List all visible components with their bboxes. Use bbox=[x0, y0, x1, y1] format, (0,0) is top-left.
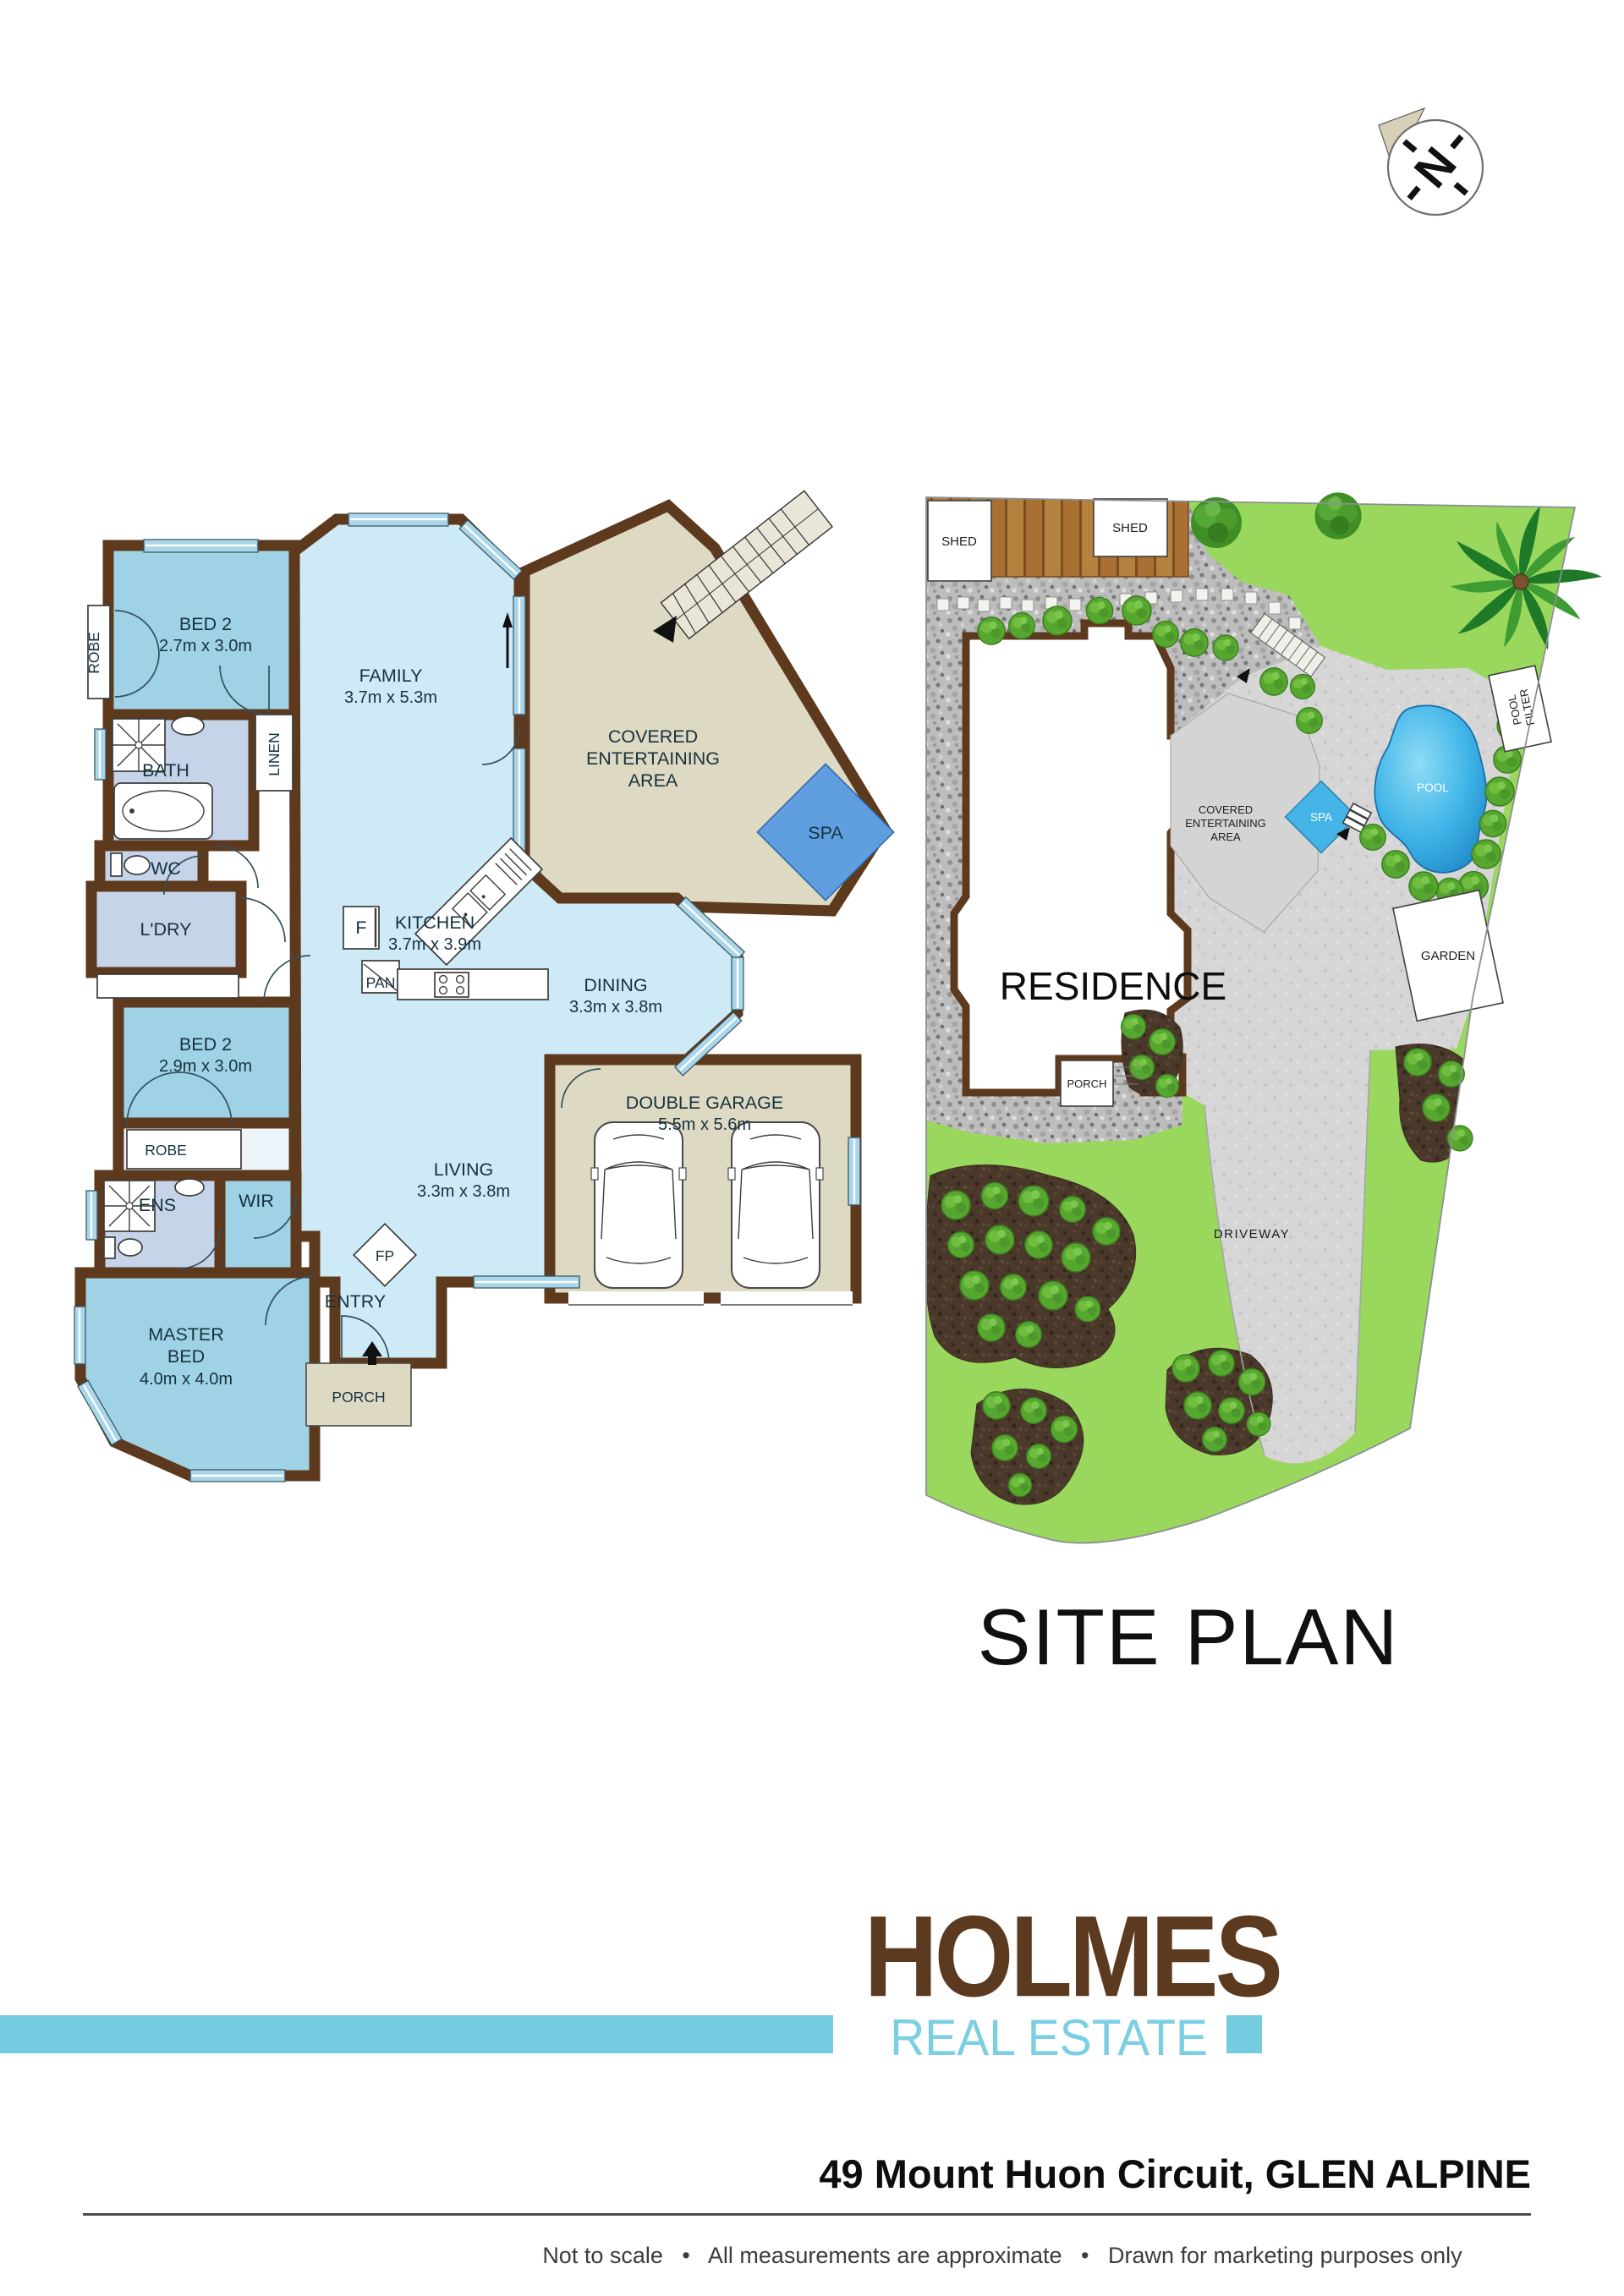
sp-label-shed-2: SHED bbox=[1112, 521, 1148, 535]
sp-label-residence: RESIDENCE bbox=[1000, 964, 1226, 1008]
compass: N bbox=[1378, 108, 1492, 225]
fp-label-covered-3: AREA bbox=[628, 770, 678, 791]
brand-logo-subtitle: REAL ESTATE bbox=[868, 2013, 1230, 2063]
fp-label-master-dims: 4.0m x 4.0m bbox=[140, 1370, 233, 1389]
fp-car-left bbox=[591, 1122, 686, 1288]
fp-label-dining: DINING bbox=[584, 975, 647, 995]
fp-label-robe-mid: ROBE bbox=[145, 1142, 187, 1159]
brand-logo-name: HOLMES bbox=[864, 1899, 1234, 2014]
fp-label-pantry: PAN bbox=[366, 974, 396, 991]
divider-line bbox=[83, 2213, 1531, 2216]
sp-tree-2 bbox=[1314, 492, 1361, 539]
fp-label-fp: FP bbox=[376, 1247, 394, 1264]
fp-label-linen: LINEN bbox=[266, 732, 283, 776]
sp-label-covered-1: COVERED bbox=[1199, 803, 1253, 816]
fp-label-ldry: L'DRY bbox=[140, 919, 191, 940]
fp-label-living-dims: 3.3m x 3.8m bbox=[417, 1182, 510, 1201]
fp-label-spa: SPA bbox=[808, 823, 843, 843]
fp-car-right bbox=[728, 1122, 823, 1288]
fp-laundry-bench bbox=[97, 974, 239, 998]
fp-label-dining-dims: 3.3m x 3.8m bbox=[569, 998, 662, 1016]
fp-label-kitchen: KITCHEN bbox=[395, 912, 475, 933]
fp-label-wir: WIR bbox=[239, 1191, 274, 1211]
fp-label-porch: PORCH bbox=[332, 1389, 385, 1406]
sp-label-covered-3: AREA bbox=[1210, 830, 1241, 843]
site-plan-title: SITE PLAN bbox=[935, 1592, 1442, 1683]
sp-label-spa: SPA bbox=[1310, 811, 1332, 824]
sp-tree-1 bbox=[1191, 497, 1242, 548]
sp-label-porch: PORCH bbox=[1067, 1077, 1107, 1090]
fp-label-master-1: MASTER bbox=[148, 1324, 224, 1345]
fp-label-garage: DOUBLE GARAGE bbox=[626, 1093, 783, 1113]
disclaimer-text: Not to scale • All measurements are appr… bbox=[474, 2243, 1531, 2269]
fp-label-ens: ENS bbox=[139, 1195, 176, 1215]
property-address: 49 Mount Huon Circuit, GLEN ALPINE bbox=[507, 2151, 1531, 2197]
sp-label-driveway: DRIVEWAY bbox=[1214, 1227, 1290, 1241]
fp-label-garage-dims: 5.5m x 5.6m bbox=[658, 1115, 751, 1134]
fp-label-family: FAMILY bbox=[359, 666, 423, 686]
fp-label-bed2-mid-dims: 2.9m x 3.0m bbox=[159, 1057, 252, 1076]
sp-label-garden: GARDEN bbox=[1421, 949, 1475, 963]
fp-label-robe-top: ROBE bbox=[85, 632, 102, 674]
sp-label-shed-1: SHED bbox=[941, 534, 977, 549]
fp-label-master-2: BED bbox=[167, 1346, 205, 1367]
floor-plan: ROBE BED 2 2.7m x 3.0m FAMILY 3.7m x 5.3… bbox=[74, 490, 894, 1482]
fp-label-wc: WC bbox=[151, 858, 181, 879]
fp-label-bed2-top-dims: 2.7m x 3.0m bbox=[159, 637, 252, 655]
sp-label-pool: POOL bbox=[1417, 781, 1449, 794]
sp-label-covered-2: ENTERTAINING bbox=[1185, 817, 1266, 830]
fp-label-kitchen-dims: 3.7m x 3.9m bbox=[388, 935, 481, 954]
fp-label-family-dims: 3.7m x 5.3m bbox=[344, 688, 437, 707]
fp-label-living: LIVING bbox=[434, 1159, 494, 1180]
site-plan: POOL FILTER GARDEN SHED SHED COVERED ENT… bbox=[913, 490, 1602, 1556]
fp-label-bath: BATH bbox=[142, 760, 189, 781]
fp-label-bed2-top: BED 2 bbox=[179, 614, 232, 634]
fp-label-covered-1: COVERED bbox=[608, 726, 698, 747]
fp-label-entry: ENTRY bbox=[325, 1291, 386, 1312]
marketing-floorplan-page: { "compass": { "north_label": "N" }, "si… bbox=[0, 0, 1624, 2296]
fp-label-covered-2: ENTERTAINING bbox=[586, 748, 720, 769]
plan-canvas: N bbox=[0, 0, 1624, 2296]
fp-label-fridge: F bbox=[355, 918, 366, 938]
fp-label-bed2-mid: BED 2 bbox=[179, 1034, 232, 1055]
fp-wc-fixtures bbox=[111, 853, 150, 876]
brand-bar-left bbox=[0, 2015, 833, 2053]
